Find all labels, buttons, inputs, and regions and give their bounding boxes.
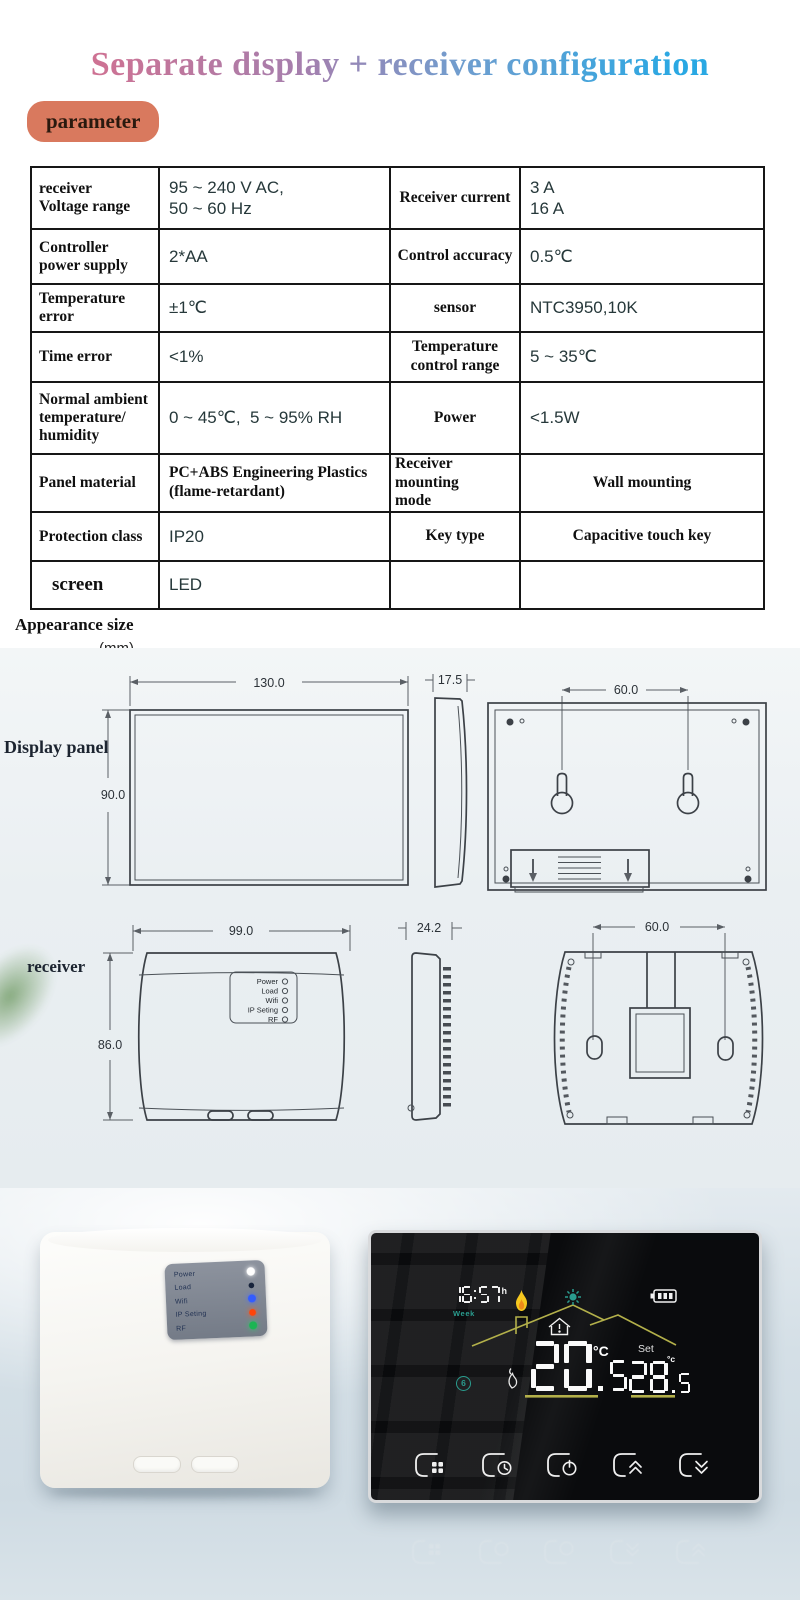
spec-label: Receiver mounting mode (391, 455, 521, 511)
clock-icon (498, 1462, 510, 1474)
spec-value: NTC3950,10K (521, 285, 763, 331)
svg-text:Wifi: Wifi (266, 996, 279, 1005)
spec-label: Time error (32, 333, 160, 381)
battery-icon (651, 1290, 677, 1302)
set-temp-unit: °c (667, 1354, 675, 1364)
spec-label: screen (32, 562, 160, 608)
room-temp-underline (525, 1395, 598, 1398)
spec-value: 0 ~ 45℃, 5 ~ 95% RH (160, 383, 391, 453)
spec-label (391, 562, 521, 608)
receiver-drawing-label: receiver (27, 957, 85, 977)
reflection-icon (477, 1538, 513, 1566)
parameter-badge: parameter (27, 101, 159, 142)
spec-label: Temperature control range (391, 333, 521, 381)
led-label: Load (174, 1284, 191, 1292)
spec-label: Receiver current (391, 168, 521, 228)
wifi-led (247, 1293, 257, 1303)
power-led (246, 1266, 256, 1276)
spec-label: Control accuracy (391, 230, 521, 283)
dim-width-label: 130.0 (253, 676, 284, 690)
receiver-back-drawing: 60.0 (535, 912, 790, 1137)
ip-setting-led (247, 1307, 257, 1317)
svg-text:Power: Power (257, 977, 279, 986)
chevrons-up-icon (630, 1462, 641, 1474)
spec-label: Power (391, 383, 521, 453)
house-roof-line (472, 1305, 604, 1346)
led-label: Wifi (175, 1298, 188, 1306)
spec-value: PC+ABS Engineering Plastics (flame-retar… (160, 455, 391, 511)
led-row: RF (176, 1319, 258, 1335)
set-temperature-display (629, 1361, 690, 1393)
receiver-button-right (191, 1456, 239, 1473)
dim-mount-label: 60.0 (614, 683, 638, 697)
table-row: Panel material PC+ABS Engineering Plasti… (32, 455, 763, 513)
receiver-led-panel: Power Load Wifi IP Seting RF (164, 1260, 267, 1340)
thermostat-touch-keys (371, 1451, 765, 1479)
receiver-front-drawing: 99.0 86.0 Power Load Wifi IP Seting RF (85, 912, 370, 1137)
set-temp-underline (631, 1395, 675, 1398)
table-row: screen LED (32, 562, 763, 608)
display-panel-side-drawing: 17.5 (424, 666, 476, 892)
room-temperature-display (531, 1341, 627, 1391)
eco-circle-icon: 6 (456, 1376, 471, 1391)
spec-value: 0.5℃ (521, 230, 763, 283)
table-row: Controller power supply 2*AA Control acc… (32, 230, 763, 285)
menu-grid-icon (432, 1462, 443, 1473)
display-panel-back-drawing: 60.0 (478, 666, 778, 894)
dim-depth-label: 17.5 (438, 673, 462, 687)
sun-icon (565, 1289, 581, 1305)
dim-depth-label: 24.2 (417, 921, 441, 935)
heating-flame-icon (509, 1369, 517, 1389)
table-row: receiver Voltage range 95 ~ 240 V AC, 50… (32, 168, 763, 230)
spec-label: receiver Voltage range (32, 168, 160, 228)
spec-value: 2*AA (160, 230, 391, 283)
rf-led (248, 1320, 258, 1330)
svg-text:Load: Load (261, 987, 278, 996)
spec-value: <1% (160, 333, 391, 381)
spec-label: Key type (391, 513, 521, 560)
spec-value: <1.5W (521, 383, 763, 453)
spec-label: sensor (391, 285, 521, 331)
spec-value (521, 562, 763, 608)
timer-button (480, 1451, 516, 1479)
reflection-icon (674, 1538, 710, 1566)
spec-label: Panel material (32, 455, 160, 511)
power-icon (563, 1461, 575, 1475)
reflection-icon (608, 1538, 644, 1566)
thermostat-buttons-reflection (368, 1538, 762, 1566)
display-panel-front-drawing: 130.0 90.0 (88, 670, 423, 890)
room-temp-unit: °C (593, 1343, 609, 1359)
led-label: IP Seting (175, 1310, 206, 1318)
receiver-photo: Power Load Wifi IP Seting RF (40, 1232, 330, 1488)
spec-value: 95 ~ 240 V AC, 50 ~ 60 Hz (160, 168, 391, 228)
spec-value: Wall mounting (521, 455, 763, 511)
room-house-icon (549, 1319, 570, 1335)
led-label: Power (174, 1270, 196, 1278)
menu-button (413, 1451, 449, 1479)
table-row: Normal ambient temperature/ humidity 0 ~… (32, 383, 763, 455)
spec-label: Normal ambient temperature/ humidity (32, 383, 160, 453)
svg-text:IP Seting: IP Seting (248, 1006, 278, 1015)
table-row: Temperature error ±1℃ sensor NTC3950,10K (32, 285, 763, 333)
reflection-icon (410, 1538, 446, 1566)
spec-value: ±1℃ (160, 285, 391, 331)
spec-label: Temperature error (32, 285, 160, 331)
thermostat-photo: h Week (368, 1230, 762, 1503)
dim-width-label: 99.0 (229, 924, 253, 938)
receiver-side-drawing: 24.2 (398, 912, 468, 1137)
spec-table: receiver Voltage range 95 ~ 240 V AC, 50… (30, 166, 765, 610)
dim-mount-label: 60.0 (645, 920, 669, 934)
temp-up-button (611, 1451, 647, 1479)
spec-label: Controller power supply (32, 230, 160, 283)
spec-value: LED (160, 562, 391, 608)
svg-text:RF: RF (268, 1015, 278, 1024)
table-row: Time error <1% Temperature control range… (32, 333, 763, 383)
spec-value: 5 ~ 35℃ (521, 333, 763, 381)
receiver-button-left (133, 1456, 181, 1473)
dim-height-label: 90.0 (101, 788, 125, 802)
load-led (246, 1280, 256, 1290)
table-row: Protection class IP20 Key type Capacitiv… (32, 513, 763, 562)
power-button (545, 1451, 581, 1479)
page-title: Separate display + receiver configuratio… (0, 46, 800, 84)
spec-value: IP20 (160, 513, 391, 560)
temp-down-button (677, 1451, 713, 1479)
spec-label: Protection class (32, 513, 160, 560)
spec-value: Capacitive touch key (521, 513, 763, 560)
page: Separate display + receiver configuratio… (0, 0, 800, 1600)
dim-height-label: 86.0 (98, 1038, 122, 1052)
led-label: RF (176, 1325, 186, 1332)
set-label: Set (638, 1343, 654, 1355)
spec-value: 3 A 16 A (521, 168, 763, 228)
chevrons-down-icon (696, 1462, 707, 1474)
appearance-size-heading: Appearance size (15, 615, 134, 635)
reflection-icon (542, 1538, 578, 1566)
